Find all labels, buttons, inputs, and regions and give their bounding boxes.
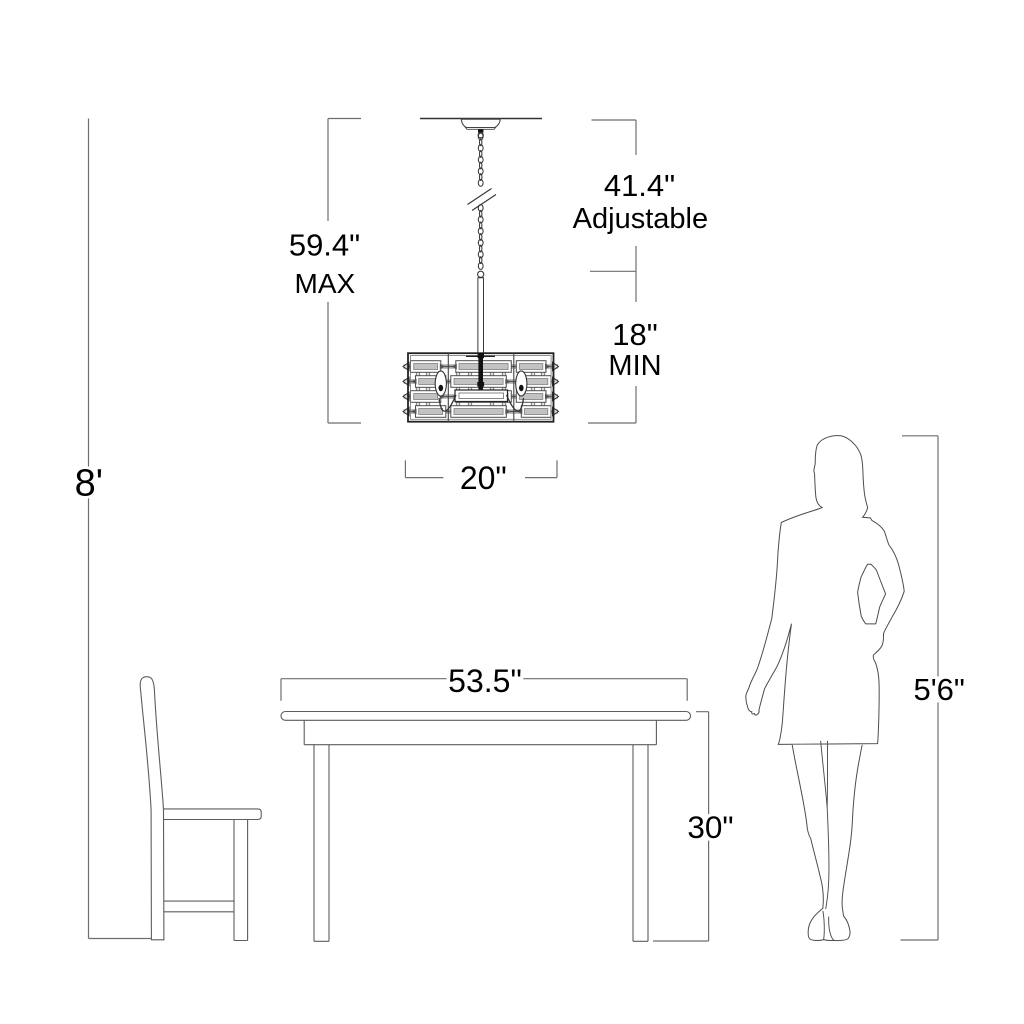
svg-text:MAX: MAX xyxy=(295,268,356,299)
svg-text:8': 8' xyxy=(75,462,103,504)
svg-text:53.5": 53.5" xyxy=(448,663,522,699)
svg-text:30": 30" xyxy=(687,809,733,845)
svg-text:5'6": 5'6" xyxy=(913,672,964,707)
svg-text:MIN: MIN xyxy=(608,350,661,382)
svg-text:Adjustable: Adjustable xyxy=(573,203,708,235)
svg-text:18": 18" xyxy=(612,317,658,352)
svg-text:59.4": 59.4" xyxy=(289,228,360,263)
svg-text:41.4": 41.4" xyxy=(604,168,675,203)
svg-text:20": 20" xyxy=(460,460,507,496)
